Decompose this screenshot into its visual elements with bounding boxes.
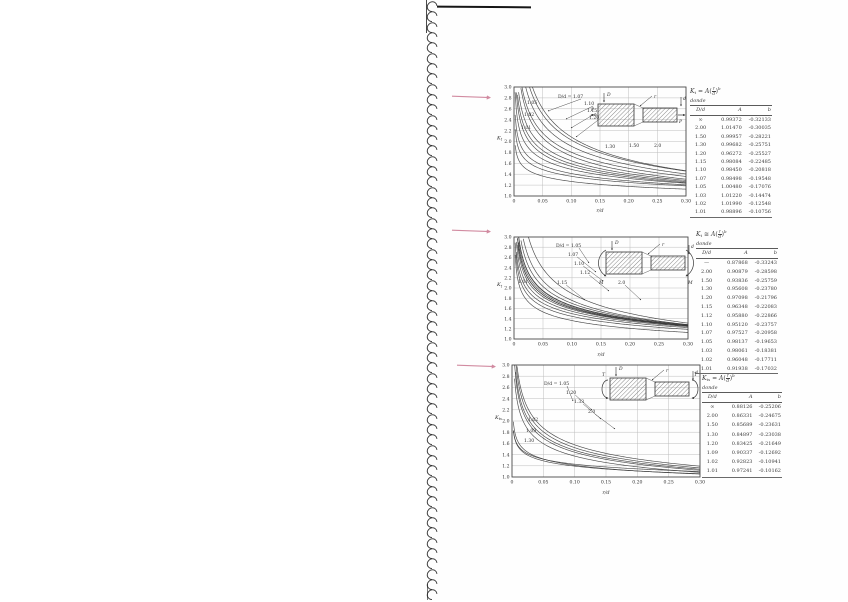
table-row: 1.010.98896-0.10756: [690, 208, 772, 217]
table-row: 1.150.98084-0.22485: [690, 158, 772, 166]
svg-text:d: d: [691, 244, 694, 250]
table-row: 1.090.90337-0.12692: [702, 449, 782, 458]
table-row: 1.300.95608-0.23780: [696, 285, 778, 294]
svg-text:2.2: 2.2: [502, 408, 509, 414]
svg-text:2.0: 2.0: [654, 143, 661, 149]
table-cell: 0.98498: [711, 175, 745, 183]
table-cell: 0.90879: [717, 268, 751, 277]
table-cell: -0.12692: [755, 449, 782, 458]
table-cell: 0.95120: [717, 321, 751, 330]
table-cell: -0.30035: [745, 124, 772, 132]
table-cell: 1.20: [696, 294, 717, 303]
kt-curve-Dd-1.50: [521, 240, 688, 324]
axial-coefficients-panel: Kt = A(rd)b donde D/d A b ∞0.99372-0.321…: [690, 86, 772, 218]
table-cell: -0.18381: [751, 347, 778, 356]
svg-text:0.20: 0.20: [624, 199, 634, 205]
table-cell: 1.01990: [711, 200, 745, 208]
svg-text:Kt: Kt: [496, 282, 503, 288]
table-row: 1.070.98498-0.19548: [690, 175, 772, 183]
table-row: 2.000.90879-0.28598: [696, 268, 778, 277]
col-b: b: [751, 249, 778, 259]
kt-curve-Dd-1.50: [525, 86, 686, 174]
table-cell: -0.20958: [751, 329, 778, 338]
svg-text:T: T: [602, 372, 606, 378]
bending-coefficients-panel: Kt ≅ A(rd)b donde D/d A b —0.87868-0.332…: [696, 229, 778, 374]
table-cell: -0.23780: [751, 285, 778, 294]
table-row: 1.200.97098-0.21796: [696, 294, 778, 303]
svg-text:2.4: 2.4: [502, 396, 509, 402]
table-cell: 0.86331: [723, 412, 756, 421]
table-cell: 0.85689: [723, 421, 756, 430]
svg-text:0.25: 0.25: [654, 342, 664, 348]
svg-text:1.10: 1.10: [584, 101, 594, 107]
svg-text:1.02: 1.02: [528, 417, 538, 423]
svg-text:2.0: 2.0: [588, 409, 595, 415]
svg-text:1.01: 1.01: [521, 125, 531, 131]
svg-text:D/d = 1.05: D/d = 1.05: [544, 381, 569, 387]
svg-text:0.15: 0.15: [601, 480, 611, 486]
table-cell: 1.01220: [711, 192, 745, 200]
table-cell: 0.87868: [717, 259, 751, 268]
table-row: ∞0.99372-0.32133: [690, 116, 772, 125]
table-cell: 0.95608: [717, 285, 751, 294]
table-cell: -0.21649: [755, 440, 782, 449]
svg-text:0.05: 0.05: [538, 480, 548, 486]
svg-text:1.2: 1.2: [504, 327, 511, 333]
svg-text:2.2: 2.2: [504, 276, 511, 282]
table-row: 1.021.01990-0.12548: [690, 200, 772, 208]
svg-text:1.2: 1.2: [502, 464, 509, 470]
svg-text:Kts: Kts: [494, 415, 502, 421]
table-cell: -0.10162: [755, 467, 782, 477]
svg-text:3.0: 3.0: [502, 363, 509, 369]
table-cell: -0.22485: [745, 158, 772, 166]
svg-text:D: D: [614, 240, 619, 246]
table-header-row: D/d A b: [690, 106, 772, 116]
table-cell: 1.03: [690, 192, 711, 200]
table-cell: -0.33243: [751, 259, 778, 268]
torsion-stress-concentration-plot: 3.02.82.62.42.22.01.81.61.41.21.000.050.…: [492, 356, 708, 498]
table-cell: -0.28598: [751, 268, 778, 277]
col-a: A: [723, 393, 756, 403]
table-cell: 0.92823: [723, 458, 756, 467]
svg-text:d: d: [683, 96, 686, 102]
svg-text:1.0: 1.0: [502, 475, 509, 481]
svg-text:0.05: 0.05: [538, 342, 548, 348]
svg-text:0.30: 0.30: [683, 342, 693, 348]
svg-text:0.10: 0.10: [567, 342, 577, 348]
table-cell: -0.23757: [751, 321, 778, 330]
table-row: 1.100.98450-0.20818: [690, 166, 772, 174]
svg-text:0.30: 0.30: [695, 480, 705, 486]
table-cell: 0.93836: [717, 277, 751, 286]
table-row: 1.020.96048-0.17711: [696, 356, 778, 365]
table-cell: 0.99682: [711, 141, 745, 149]
col-dd: D/d: [690, 106, 711, 116]
table-row: 1.030.98061-0.18381: [696, 347, 778, 356]
svg-text:2.0: 2.0: [618, 280, 625, 286]
table-cell: 1.30: [702, 431, 723, 440]
table-cell: -0.17076: [745, 183, 772, 191]
svg-text:1.4: 1.4: [502, 452, 509, 458]
table-cell: ∞: [702, 403, 723, 413]
table-row: 1.010.97241-0.10162: [702, 467, 782, 477]
svg-text:1.30: 1.30: [524, 438, 534, 444]
table-cell: 0.98084: [711, 158, 745, 166]
svg-text:0.05: 0.05: [538, 199, 548, 205]
table-cell: 0.98061: [717, 347, 751, 356]
table-cell: 2.00: [702, 412, 723, 421]
table-cell: 1.50: [690, 133, 711, 141]
table-row: 1.200.96272-0.25527: [690, 150, 772, 158]
svg-text:2.8: 2.8: [504, 96, 511, 102]
table-cell: -0.21796: [751, 294, 778, 303]
table-row: 1.500.93836-0.25759: [696, 277, 778, 286]
kt-curve-Dd-1.20: [521, 88, 686, 179]
svg-text:0.20: 0.20: [625, 342, 635, 348]
svg-text:1.33: 1.33: [574, 399, 584, 405]
table-row: 1.031.01220-0.14474: [690, 192, 772, 200]
col-dd: D/d: [702, 393, 723, 403]
svg-text:Kt: Kt: [496, 135, 503, 141]
svg-text:2.4: 2.4: [504, 117, 511, 123]
table-cell: 0.98896: [711, 208, 745, 217]
svg-text:0: 0: [513, 342, 516, 348]
table-row: 1.020.92823-0.10941: [702, 458, 782, 467]
table-row: 1.300.99682-0.25751: [690, 141, 772, 149]
table-row: 1.120.95880-0.22866: [696, 312, 778, 321]
svg-text:1.4: 1.4: [504, 172, 511, 178]
table-cell: -0.17711: [751, 356, 778, 365]
relation-sign: =: [698, 88, 703, 95]
table-cell: -0.12548: [745, 200, 772, 208]
table-cell: 0.99372: [711, 116, 745, 125]
table-cell: -0.32133: [745, 116, 772, 125]
svg-text:1.6: 1.6: [502, 441, 509, 447]
table-cell: 1.50: [702, 421, 723, 430]
where-label: donde: [696, 241, 778, 247]
where-label: donde: [690, 98, 772, 104]
col-a: A: [711, 106, 745, 116]
where-label: donde: [702, 385, 782, 391]
relation-sign: =: [712, 375, 717, 382]
table-cell: 1.05: [690, 183, 711, 191]
svg-text:1.0: 1.0: [504, 337, 511, 343]
kt-formula: Kt ≅ A(rd)b: [696, 229, 778, 239]
svg-text:1.6: 1.6: [504, 306, 511, 312]
table-cell: 0.84897: [723, 431, 756, 440]
svg-text:D/d = 1.05: D/d = 1.05: [556, 243, 581, 249]
col-a: A: [717, 249, 751, 259]
table-header-row: D/d A b: [702, 393, 782, 403]
table-cell: 0.97098: [717, 294, 751, 303]
svg-text:0: 0: [513, 199, 516, 205]
table-cell: 0.83425: [723, 440, 756, 449]
svg-text:0.25: 0.25: [664, 480, 674, 486]
table-cell: -0.23631: [755, 421, 782, 430]
svg-text:r: r: [654, 95, 657, 100]
table-row: 1.500.99957-0.28221: [690, 133, 772, 141]
svg-text:1.01: 1.01: [518, 279, 528, 285]
svg-text:2.2: 2.2: [504, 128, 511, 134]
kt-formula: Kt = A(rd)b: [690, 86, 772, 96]
table-cell: 1.10: [696, 321, 717, 330]
table-cell: 0.96048: [717, 356, 751, 365]
svg-text:M: M: [687, 280, 693, 286]
table-cell: -0.25206: [755, 403, 782, 413]
svg-text:M: M: [598, 280, 604, 286]
table-cell: ∞: [690, 116, 711, 125]
svg-text:3.0: 3.0: [504, 235, 511, 241]
svg-text:0.20: 0.20: [632, 480, 642, 486]
table-row: 1.300.84897-0.23038: [702, 431, 782, 440]
table-row: 1.070.97527-0.20958: [696, 329, 778, 338]
table-cell: -0.14474: [745, 192, 772, 200]
annotation-arrow: [451, 93, 497, 103]
table-cell: 1.15: [690, 158, 711, 166]
svg-text:1.09: 1.09: [526, 428, 536, 434]
svg-text:0.15: 0.15: [595, 199, 605, 205]
table-row: 1.051.00480-0.17076: [690, 183, 772, 191]
table-cell: 1.12: [696, 312, 717, 321]
svg-text:2.0: 2.0: [502, 419, 509, 425]
svg-text:0.10: 0.10: [566, 199, 576, 205]
table-cell: -0.20818: [745, 166, 772, 174]
svg-text:r/d: r/d: [602, 490, 609, 496]
kt-curve-Dd-1.30: [515, 363, 700, 470]
table-cell: 1.02: [690, 200, 711, 208]
kts-formula: Kts = A(rd)b: [702, 373, 782, 383]
table-row: —0.87868-0.33243: [696, 259, 778, 268]
kt-curve-Dd-1.09: [513, 422, 700, 474]
table-header-row: D/d A b: [696, 249, 778, 259]
col-b: b: [755, 393, 782, 403]
svg-text:1.15: 1.15: [557, 280, 567, 286]
svg-text:1.12: 1.12: [580, 270, 590, 276]
svg-text:1.8: 1.8: [504, 296, 511, 302]
table-row: 1.500.85689-0.23631: [702, 421, 782, 430]
annotation-arrow: [451, 227, 497, 237]
svg-text:2.8: 2.8: [504, 245, 511, 251]
bending-loading-inset: rDdMM: [598, 240, 694, 286]
table-cell: 1.10: [690, 166, 711, 174]
table-row: 1.150.96348-0.22083: [696, 303, 778, 312]
svg-text:2.0: 2.0: [504, 139, 511, 145]
table-cell: -0.23038: [755, 431, 782, 440]
svg-text:2.4: 2.4: [504, 265, 511, 271]
table-row: 1.050.98137-0.19653: [696, 338, 778, 347]
table-cell: -0.22083: [751, 303, 778, 312]
table-cell: 1.15: [696, 303, 717, 312]
svg-text:1.2: 1.2: [504, 183, 511, 189]
svg-text:1.20: 1.20: [566, 390, 576, 396]
table-row: 1.200.83425-0.21649: [702, 440, 782, 449]
table-cell: 1.07: [690, 175, 711, 183]
table-cell: 2.00: [690, 124, 711, 132]
table-cell: -0.19548: [745, 175, 772, 183]
svg-text:1.8: 1.8: [504, 150, 511, 156]
svg-text:2.0: 2.0: [504, 286, 511, 292]
svg-text:1.10: 1.10: [574, 261, 584, 267]
table-cell: -0.25751: [745, 141, 772, 149]
table-cell: 0.99957: [711, 133, 745, 141]
svg-text:1.07: 1.07: [568, 252, 578, 258]
svg-text:1.8: 1.8: [502, 430, 509, 436]
bending-stress-concentration-plot: 3.02.82.62.42.22.01.81.61.41.21.000.050.…: [494, 228, 706, 360]
table-cell: 1.05: [696, 338, 717, 347]
svg-text:2.8: 2.8: [502, 374, 509, 380]
table-cell: 1.09: [702, 449, 723, 458]
table-cell: 1.01: [690, 208, 711, 217]
svg-text:D/d = 1.07: D/d = 1.07: [558, 94, 583, 100]
table-cell: 1.30: [696, 285, 717, 294]
svg-text:2.6: 2.6: [502, 385, 509, 391]
table-cell: 1.00480: [711, 183, 745, 191]
svg-text:1.6: 1.6: [504, 161, 511, 167]
table-cell: 1.30: [690, 141, 711, 149]
table-cell: 1.03: [696, 347, 717, 356]
table-cell: 0.97241: [723, 467, 756, 477]
table-cell: 1.01: [702, 467, 723, 477]
table-cell: -0.25527: [745, 150, 772, 158]
coefficients-table: D/d A b ∞0.99372-0.321332.001.01470-0.30…: [690, 105, 772, 218]
table-cell: -0.28221: [745, 133, 772, 141]
table-cell: 0.88126: [723, 403, 756, 413]
table-cell: -0.24675: [755, 412, 782, 421]
table-cell: -0.19653: [751, 338, 778, 347]
svg-text:2.6: 2.6: [504, 255, 511, 261]
table-cell: -0.10941: [755, 458, 782, 467]
svg-text:1.05: 1.05: [527, 100, 537, 106]
kt-curve-Dd-—: [528, 235, 688, 323]
table-cell: -0.10756: [745, 208, 772, 217]
svg-text:D: D: [606, 92, 611, 98]
svg-text:0: 0: [511, 480, 514, 486]
table-cell: 1.07: [696, 329, 717, 338]
table-cell: 1.01470: [711, 124, 745, 132]
svg-text:2.6: 2.6: [504, 107, 511, 113]
table-cell: 1.02: [702, 458, 723, 467]
svg-text:0.25: 0.25: [652, 199, 662, 205]
table-cell: 1.02: [696, 356, 717, 365]
table-row: 2.001.01470-0.30035: [690, 124, 772, 132]
svg-text:r/d: r/d: [596, 208, 603, 214]
table-cell: 0.98137: [717, 338, 751, 347]
table-cell: —: [696, 259, 717, 268]
svg-text:0.10: 0.10: [570, 480, 580, 486]
col-dd: D/d: [696, 249, 717, 259]
table-cell: 2.00: [696, 268, 717, 277]
table-row: 2.000.86331-0.24675: [702, 412, 782, 421]
svg-text:0.15: 0.15: [596, 342, 606, 348]
svg-text:1.50: 1.50: [629, 143, 639, 149]
svg-text:1.02: 1.02: [524, 112, 534, 118]
table-cell: 0.96348: [717, 303, 751, 312]
coefficients-table: D/d A b ∞0.88126-0.252062.000.86331-0.24…: [702, 392, 782, 478]
svg-text:1.4: 1.4: [504, 316, 511, 322]
table-cell: 0.98450: [711, 166, 745, 174]
torsion-coefficients-panel: Kts = A(rd)b donde D/d A b ∞0.88126-0.25…: [702, 373, 782, 478]
table-cell: 0.90337: [723, 449, 756, 458]
svg-text:3.0: 3.0: [504, 85, 511, 91]
axial-tension-stress-concentration-plot: 3.02.82.62.42.22.01.81.61.41.21.000.050.…: [494, 78, 706, 216]
svg-text:1.30: 1.30: [605, 144, 615, 150]
table-cell: -0.25759: [751, 277, 778, 286]
table-cell: 0.96272: [711, 150, 745, 158]
svg-text:1.0: 1.0: [504, 194, 511, 200]
table-cell: -0.22866: [751, 312, 778, 321]
table-cell: 0.95880: [717, 312, 751, 321]
relation-sign: ≅: [704, 231, 709, 238]
table-row: ∞0.88126-0.25206: [702, 403, 782, 413]
table-cell: 1.50: [696, 277, 717, 286]
table-cell: 0.97527: [717, 329, 751, 338]
torsion-loading-inset: rDdTT: [602, 366, 698, 400]
svg-text:D: D: [618, 366, 623, 372]
table-cell: 1.20: [690, 150, 711, 158]
table-row: 1.100.95120-0.23757: [696, 321, 778, 330]
coefficients-table: D/d A b —0.87868-0.332432.000.90879-0.28…: [696, 248, 778, 374]
table-cell: 1.20: [702, 440, 723, 449]
col-b: b: [745, 106, 772, 116]
